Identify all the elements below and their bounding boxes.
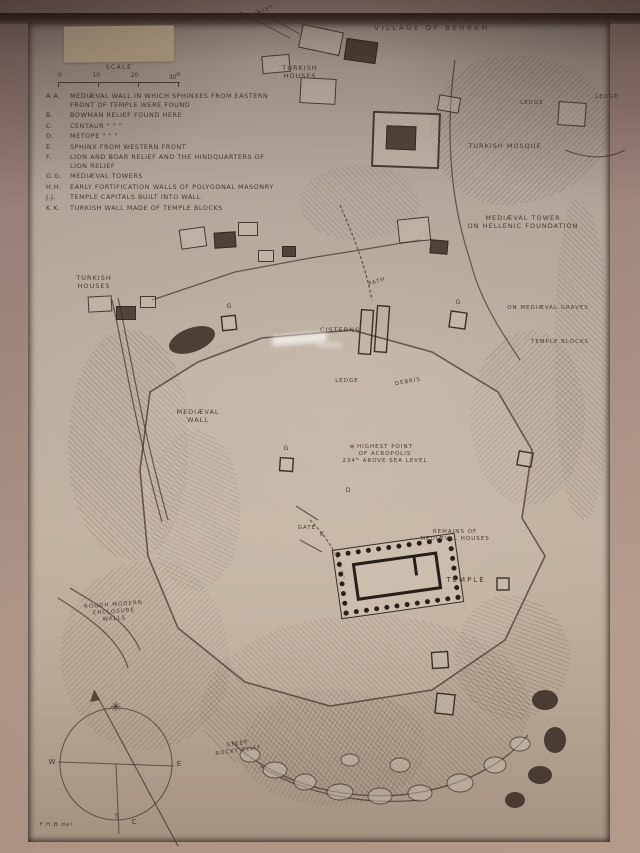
label-turkish-houses-top: TURKISH HOUSES	[282, 64, 317, 80]
legend-item: E.SPHINX FROM WESTERN FRONT	[46, 143, 278, 152]
legend-item: F.LION AND BOAR RELIEF AND THE HINDQUART…	[46, 153, 278, 170]
scale-tick: 20	[131, 72, 139, 81]
label-temple-blocks: TEMPLE BLOCKS	[531, 338, 589, 346]
temple-crosswall	[413, 557, 418, 575]
label-ledge-top-right: LEDGE	[595, 93, 619, 101]
label-temple: TEMPLE	[446, 576, 485, 584]
building-shape	[179, 226, 208, 249]
legend-item: H.H.EARLY FORTIFICATION WALLS OF POLYGON…	[46, 183, 278, 192]
building-shape	[429, 239, 448, 255]
scale-tick-labels: 0 10 20 30M	[58, 72, 180, 81]
marker-letter-g: G	[283, 444, 288, 452]
artist-signature: F.H.B del	[40, 822, 73, 828]
label-gate: GATE	[298, 524, 316, 532]
building-shape	[258, 250, 274, 262]
compass-south-label: S	[115, 812, 119, 820]
building-shape	[88, 295, 113, 312]
building-shape	[238, 222, 258, 236]
building-shape	[397, 216, 431, 243]
label-turkish-mosque: TURKISH MOSQUE	[468, 142, 541, 150]
compass-east-label: E	[177, 760, 181, 768]
label-ledge-center: LEDGE	[335, 377, 359, 385]
scale-tick: 30M	[169, 72, 180, 81]
legend-item: B.BOWMAN RELIEF FOUND HERE	[46, 111, 278, 120]
legend-item: C.CENTAUR " " "	[46, 122, 278, 131]
label-enclosure-walls: ROUGH MODERN ENCLOSURE WALLS	[84, 600, 144, 625]
marker-letter-k: K	[320, 530, 324, 538]
marker-letter-d: D	[345, 486, 350, 494]
turkish-mosque-building	[557, 101, 587, 127]
label-turkish-houses-left: TURKISH HOUSES	[76, 274, 111, 290]
scale-unit: M	[177, 72, 180, 77]
building-shape	[386, 125, 417, 150]
label-medieval-graves: ON MEDIÆVAL GRAVES	[507, 304, 589, 312]
building-shape	[282, 246, 296, 257]
map-title: VILLAGE OF BEHRÂM	[374, 24, 490, 32]
label-medieval-wall: MEDIÆVAL WALL	[176, 408, 219, 424]
label-remains-houses: REMAINS OF MEDIÆVAL HOUSES	[420, 529, 489, 543]
building-shape	[116, 306, 136, 320]
label-ledge-right: LEDGE	[520, 99, 544, 107]
marker-letter-g: G	[226, 302, 231, 310]
compass-west-label: W	[49, 758, 56, 766]
compass-c-label: C	[132, 818, 137, 826]
mosque-courtyard-building	[371, 111, 441, 169]
building-shape	[213, 231, 236, 248]
highest-point-star-icon: ✳	[349, 443, 355, 451]
building-shape	[344, 38, 379, 64]
building-shape	[140, 296, 156, 308]
legend-item: D.METOPE " " "	[46, 132, 278, 141]
legend-item: K.K.TURKISH WALL MADE OF TEMPLE BLOCKS	[46, 204, 278, 213]
scale-bar-line	[58, 82, 180, 87]
marker-letter-g: G	[455, 298, 460, 306]
map-legend: A.A.MEDIÆVAL WALL IN WHICH SPHINXES FROM…	[46, 92, 278, 214]
scale-title: SCALE	[58, 64, 180, 71]
scale-tick: 0	[58, 72, 62, 81]
legend-item: A.A.MEDIÆVAL WALL IN WHICH SPHINXES FROM…	[46, 92, 278, 109]
glare-streak	[316, 342, 342, 348]
compass-north-star-icon: ✳	[111, 700, 122, 715]
scale-tick: 10	[92, 72, 100, 81]
scale-bar: SCALE 0 10 20 30M	[58, 64, 180, 87]
legend-item: J.J.TEMPLE CAPITALS BUILT INTO WALL	[46, 193, 278, 202]
label-medieval-tower: MEDIÆVAL TOWER ON HELLENIC FOUNDATION	[468, 214, 579, 230]
tape-label	[64, 25, 174, 62]
legend-item: G.G.MEDIÆVAL TOWERS	[46, 172, 278, 181]
building-shape	[299, 77, 336, 105]
framed-map-photo: SCALE 0 10 20 30M A.A.MEDIÆVAL WALL IN W…	[0, 0, 640, 853]
label-highest-point: HIGHEST POINT OF ACROPOLIS 234ᴹ ABOVE SE…	[342, 444, 427, 465]
